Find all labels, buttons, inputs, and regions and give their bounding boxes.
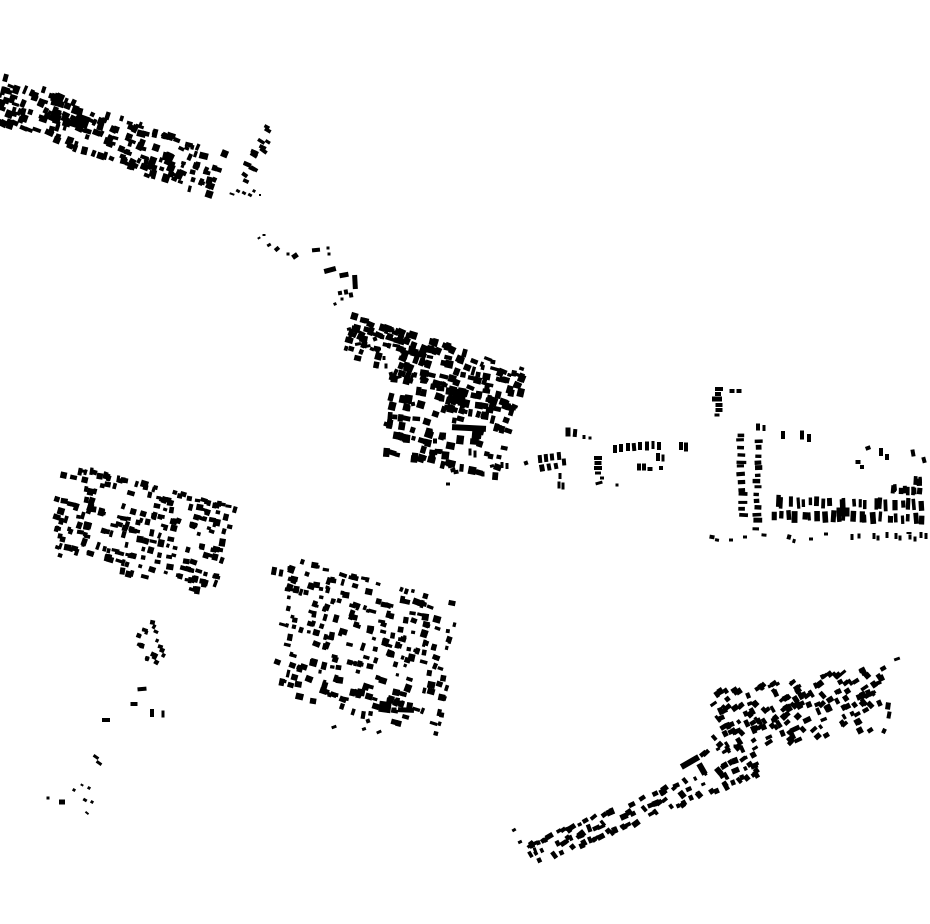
building-footprint [278, 569, 283, 577]
building-footprint [104, 111, 111, 120]
building-footprint [263, 234, 266, 236]
building-footprint [383, 448, 390, 457]
building-footprint [662, 455, 665, 462]
building-footprint [106, 548, 111, 553]
building-footprint [344, 345, 349, 351]
building-footprint [385, 364, 388, 369]
building-footprint [138, 564, 143, 569]
building-footprint [199, 152, 209, 161]
building-footprint [648, 810, 657, 817]
building-footprint [225, 504, 231, 508]
building-footprint [550, 453, 555, 460]
building-footprint [420, 659, 428, 664]
building-footprint [544, 454, 549, 462]
building-footprint [346, 659, 353, 665]
building-footprint [397, 414, 403, 422]
building-footprint [137, 687, 146, 692]
building-footprint [63, 544, 71, 551]
building-footprint [386, 611, 391, 617]
building-footprint [518, 840, 523, 844]
building-footprint [736, 472, 745, 477]
building-footprint [393, 661, 399, 668]
building-footprint [814, 511, 820, 521]
building-footprint [743, 774, 751, 782]
building-footprint [573, 429, 578, 437]
building-footprint [512, 828, 517, 833]
building-footprint [737, 464, 744, 467]
building-footprint [814, 732, 822, 740]
building-footprint [391, 719, 399, 726]
building-footprint [738, 488, 745, 492]
building-footprint [469, 449, 472, 456]
building-footprint [97, 507, 105, 516]
building-footprint [918, 477, 922, 484]
building-footprint [291, 624, 296, 629]
building-footprint [196, 532, 201, 537]
building-footprint [433, 731, 438, 736]
building-footprint [906, 498, 911, 510]
building-footprint [411, 436, 416, 441]
building-footprint [331, 725, 337, 730]
building-cluster-right-ne-block [891, 476, 923, 495]
building-footprint [57, 507, 66, 516]
building-footprint [826, 670, 834, 678]
building-footprint [470, 366, 476, 375]
building-footprint [616, 484, 619, 487]
building-footprint [361, 576, 367, 580]
building-footprint [715, 414, 720, 417]
building-footprint [852, 499, 856, 507]
building-footprint [693, 776, 698, 781]
building-footprint [619, 444, 623, 452]
building-footprint [335, 665, 341, 671]
building-footprint [755, 439, 763, 443]
building-footprint [786, 510, 791, 520]
building-footprint [195, 143, 201, 150]
building-footprint [136, 129, 146, 138]
building-footprint [743, 536, 747, 539]
building-footprint [41, 86, 47, 94]
building-footprint [715, 392, 721, 396]
building-footprint [85, 134, 90, 140]
building-footprint [304, 675, 313, 684]
building-footprint [906, 487, 910, 496]
building-footprint [595, 461, 602, 465]
building-footprint [910, 449, 915, 457]
building-footprint [738, 480, 746, 484]
building-footprint [810, 726, 818, 734]
building-footprint [149, 529, 155, 537]
building-footprint [339, 572, 348, 578]
building-footprint [445, 645, 449, 650]
building-footprint [279, 622, 286, 627]
building-footprint [287, 253, 290, 256]
building-footprint [141, 555, 146, 560]
building-footprint [76, 521, 83, 529]
building-footprint [186, 153, 193, 161]
building-footprint [170, 524, 178, 532]
building-footprint [406, 676, 413, 682]
building-footprint [823, 732, 830, 739]
building-footprint [131, 702, 138, 706]
building-footprint [108, 155, 114, 161]
building-footprint [821, 499, 825, 509]
building-footprint [57, 553, 62, 558]
building-footprint [404, 588, 409, 595]
building-footprint [865, 445, 871, 450]
building-footprint [516, 388, 525, 398]
building-footprint [914, 537, 917, 542]
building-footprint [577, 822, 582, 827]
building-footprint [586, 824, 593, 833]
building-footprint [321, 661, 328, 670]
building-footprint [736, 461, 746, 464]
building-footprint [600, 477, 604, 480]
building-footprint [807, 434, 811, 442]
building-footprint [427, 355, 434, 359]
building-footprint [750, 737, 756, 743]
building-footprint [267, 243, 272, 248]
building-footprint [786, 534, 791, 540]
building-footprint [747, 701, 753, 706]
building-footprint [378, 619, 385, 623]
building-cluster-southwest-chain [47, 687, 165, 815]
building-footprint [271, 567, 277, 576]
building-footprint [162, 711, 165, 718]
building-footprint [444, 685, 449, 692]
building-footprint [715, 538, 719, 542]
building-footprint [558, 482, 561, 489]
building-footprint [144, 518, 150, 525]
building-footprint [656, 453, 660, 461]
building-footprint [501, 462, 504, 468]
building-footprint [822, 511, 828, 523]
building-footprint [888, 516, 893, 523]
building-footprint [83, 798, 88, 803]
building-footprint [426, 670, 432, 677]
building-footprint [729, 539, 733, 542]
building-footprint [195, 568, 203, 574]
building-footprint [398, 422, 406, 431]
building-footprint [300, 559, 305, 565]
building-footprint [398, 707, 414, 713]
building-footprint [96, 473, 103, 480]
building-footprint [83, 521, 91, 530]
building-footprint [215, 510, 220, 515]
building-footprint [126, 121, 133, 126]
building-footprint [60, 498, 68, 504]
building-footprint [557, 452, 562, 460]
building-footprint [834, 697, 840, 704]
building-footprint [167, 536, 174, 542]
building-footprint [779, 511, 784, 519]
building-footprint [818, 724, 823, 729]
building-footprint [815, 707, 821, 715]
building-footprint [460, 372, 466, 378]
building-footprint [755, 465, 762, 470]
building-footprint [390, 632, 395, 639]
building-footprint [456, 435, 464, 445]
building-footprint [481, 411, 489, 420]
building-footprint [862, 707, 870, 714]
building-footprint [84, 534, 91, 539]
building-footprint [183, 558, 190, 564]
building-footprint [863, 500, 867, 509]
building-footprint [213, 573, 219, 579]
building-footprint [432, 615, 441, 624]
building-footprint [27, 109, 33, 116]
building-footprint [851, 701, 858, 708]
building-footprint [77, 468, 82, 476]
building-footprint [730, 779, 736, 786]
building-footprint [437, 721, 441, 726]
building-footprint [474, 451, 477, 458]
building-footprint [737, 446, 744, 450]
building-footprint [322, 568, 329, 572]
building-footprint [139, 510, 147, 517]
building-footprint [392, 414, 398, 419]
building-footprint [913, 476, 917, 485]
building-footprint [738, 501, 747, 504]
building-footprint [169, 507, 174, 514]
building-footprint [376, 730, 382, 735]
building-footprint [921, 457, 926, 464]
building-footprint [438, 449, 443, 454]
building-footprint [805, 701, 812, 708]
building-footprint [54, 133, 61, 143]
building-footprint-map [0, 0, 930, 924]
building-footprint [837, 508, 850, 517]
building-footprint [807, 512, 811, 520]
building-footprint [519, 366, 525, 371]
building-footprint [219, 538, 226, 547]
building-footprint [496, 454, 502, 459]
building-footprint [899, 488, 904, 494]
building-footprint [880, 665, 887, 672]
building-footprint [93, 754, 100, 760]
building-footprint [416, 400, 426, 409]
building-footprint [452, 424, 486, 432]
building-footprint [802, 512, 808, 520]
building-footprint [328, 253, 331, 256]
building-footprint [243, 178, 250, 184]
building-footprint [781, 431, 785, 439]
building-footprint [743, 719, 750, 727]
building-footprint [906, 514, 910, 522]
building-footprint [150, 709, 154, 717]
building-footprint [348, 346, 355, 352]
building-footprint [222, 513, 229, 521]
building-footprint [408, 345, 416, 354]
building-footprint [536, 857, 542, 863]
building-footprint [695, 790, 704, 799]
building-footprint [286, 605, 291, 611]
building-footprint [763, 425, 766, 431]
building-footprint [219, 557, 225, 564]
building-footprint [482, 472, 485, 477]
building-footprint [679, 442, 683, 450]
building-footprint [91, 150, 97, 158]
building-cluster-right-column-b [752, 439, 762, 530]
building-footprint [862, 514, 867, 522]
building-footprint [856, 460, 861, 464]
building-footprint [753, 479, 761, 483]
building-footprint [187, 185, 192, 192]
building-footprint [502, 417, 510, 424]
building-footprint [80, 146, 88, 155]
building-footprint [645, 442, 649, 451]
building-footprint [148, 566, 156, 573]
building-footprint [400, 655, 404, 660]
building-footprint [274, 246, 280, 252]
building-footprint [186, 496, 192, 502]
building-footprint [339, 272, 349, 278]
building-footprint [594, 466, 602, 470]
building-footprint [569, 843, 576, 850]
building-footprint [459, 464, 464, 472]
building-footprint [737, 389, 742, 393]
building-footprint [0, 86, 6, 95]
building-footprint [764, 739, 773, 747]
building-footprint [860, 465, 864, 469]
building-footprint [409, 426, 416, 433]
building-footprint [461, 349, 468, 358]
building-footprint [213, 579, 219, 587]
building-footprint [420, 707, 425, 714]
building-cluster-north-strip [241, 124, 271, 184]
building-footprint [157, 552, 162, 558]
building-footprint [420, 445, 427, 454]
building-footprint [527, 851, 533, 858]
building-footprint [395, 452, 401, 457]
building-footprint [642, 464, 646, 471]
building-footprint [312, 640, 321, 648]
building-footprint [339, 703, 345, 710]
building-footprint [355, 669, 360, 674]
building-footprint [362, 727, 367, 731]
building-footprint [287, 595, 291, 599]
building-footprint [709, 535, 715, 540]
building-footprint [319, 623, 325, 629]
building-footprint [159, 166, 165, 171]
building-footprint [189, 169, 195, 175]
building-cluster-road-bend-hamlet [257, 234, 358, 306]
building-footprint [102, 546, 107, 552]
building-footprint [286, 670, 291, 678]
building-footprint [151, 487, 156, 493]
building-footprint [96, 760, 103, 766]
building-footprint [151, 143, 160, 152]
building-footprint [104, 481, 111, 487]
building-footprint [199, 543, 204, 548]
building-footprint [858, 534, 861, 539]
building-footprint [824, 703, 833, 713]
building-footprint [190, 177, 196, 183]
building-footprint [354, 355, 362, 362]
building-footprint [154, 559, 160, 564]
building-footprint [437, 666, 443, 671]
building-footprint [652, 441, 655, 449]
building-footprint [153, 659, 159, 665]
building-footprint [745, 692, 751, 699]
building-footprint [373, 361, 380, 368]
building-footprint [895, 533, 898, 539]
building-footprint [332, 614, 339, 623]
building-footprint [163, 507, 168, 511]
building-footprint [470, 358, 478, 365]
building-footprint [752, 745, 759, 751]
building-cluster-southeast-lower [527, 751, 761, 863]
building-footprint [341, 298, 344, 301]
building-footprint [259, 194, 261, 196]
building-footprint [433, 439, 437, 444]
building-footprint [199, 578, 206, 584]
building-footprint [756, 445, 762, 450]
building-footprint [257, 138, 265, 145]
building-footprint [490, 360, 495, 365]
building-footprint [814, 496, 819, 506]
building-footprint [203, 571, 208, 576]
building-footprint [918, 501, 924, 511]
building-footprint [121, 503, 126, 510]
building-footprint [917, 488, 923, 495]
building-footprint [779, 497, 783, 509]
building-footprint [403, 663, 407, 667]
building-footprint [594, 456, 602, 460]
building-footprint [550, 851, 558, 860]
building-footprint [659, 466, 663, 470]
building-footprint [336, 598, 342, 604]
building-footprint [886, 711, 891, 719]
building-footprint [492, 472, 498, 480]
building-footprint [361, 711, 366, 719]
building-footprint [438, 694, 446, 702]
building-footprint [680, 754, 700, 769]
building-footprint [83, 128, 92, 135]
building-footprint [684, 443, 688, 452]
building-footprint [476, 470, 479, 475]
building-footprint [715, 387, 723, 391]
building-footprint [590, 813, 598, 820]
building-footprint [724, 696, 731, 703]
building-footprint [867, 727, 874, 734]
building-footprint [613, 445, 617, 453]
building-footprint [885, 702, 891, 710]
building-footprint [736, 438, 744, 441]
building-footprint [789, 679, 797, 686]
building-footprint [713, 788, 720, 795]
building-footprint [342, 592, 350, 599]
building-footprint [907, 532, 912, 534]
building-footprint [701, 782, 706, 786]
building-footprint [440, 675, 447, 682]
building-footprint [195, 499, 201, 503]
building-footprint [809, 497, 812, 505]
building-footprint [227, 524, 233, 529]
building-footprint [925, 533, 928, 539]
building-footprint [870, 512, 877, 524]
building-footprint [375, 582, 380, 586]
building-footprint [60, 471, 68, 479]
building-footprint [312, 629, 320, 637]
building-footprint [248, 193, 253, 198]
building-footprint [716, 741, 724, 749]
building-footprint [346, 642, 353, 647]
building-footprint [319, 587, 324, 591]
building-footprint [352, 601, 361, 609]
building-footprint [188, 503, 194, 511]
building-footprint [412, 453, 419, 461]
